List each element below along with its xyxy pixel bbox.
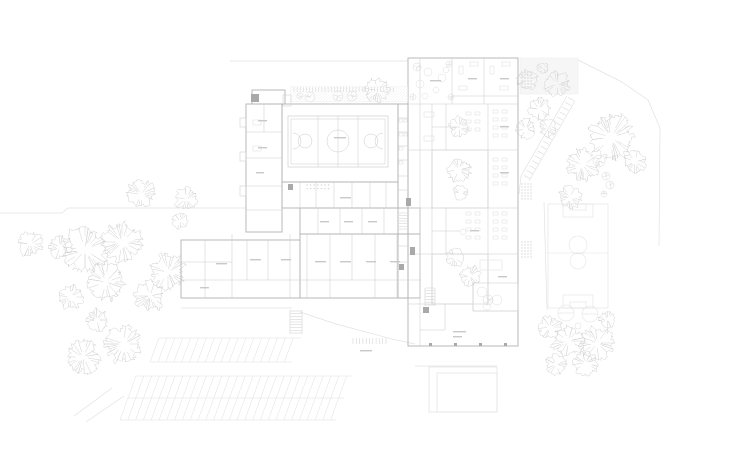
site-boundary-line [86,396,124,422]
core-solid [410,247,415,255]
hatch-line [370,86,386,102]
stair-tread [560,112,566,115]
room-label-mark [281,259,291,260]
planting-dot [530,77,531,78]
planting-dot [530,80,531,81]
stair-tread [535,156,541,159]
planting-dot [527,195,528,196]
planting-dot [324,184,325,185]
table [460,229,466,235]
planting-dot [524,250,525,251]
bush [606,173,607,176]
furniture [502,62,510,66]
planting-dot [314,184,315,185]
planting-dot [527,250,528,251]
parking-stripe [190,338,199,362]
desk [466,120,471,123]
tree [62,226,109,272]
planting-dot [530,195,531,196]
planting-dot [524,241,525,242]
room-label-mark [216,263,227,264]
desk [493,158,498,161]
planting-dot [527,80,528,81]
site-boundary-line [529,101,575,181]
table [492,295,502,305]
hatch-line [355,86,371,102]
bush [413,97,414,99]
planting-dot [524,189,525,190]
planting-dot [530,241,531,242]
planting-dot [524,77,525,78]
planting-dot [527,241,528,242]
core-solid [429,343,432,346]
planting-dot [321,188,322,189]
core-solid [251,94,259,102]
tree [625,150,647,173]
desk [475,212,480,215]
tree [448,115,469,137]
room-label-mark [200,287,209,288]
planting-dot [530,86,531,87]
planting-dot [521,189,522,190]
planting-dot [524,195,525,196]
room-label-mark [250,259,261,260]
parking-stripe [253,338,262,362]
parking-stripe [261,338,270,362]
parking-stripe [269,338,278,362]
room-label-mark [390,261,400,262]
tree [538,315,562,338]
parking-stripe [237,338,246,362]
parking-stripe [245,338,254,362]
desk [502,212,507,215]
wall [282,182,398,208]
parking-stripe [229,338,238,362]
room-label-mark [256,172,264,173]
stair-tread [538,151,544,154]
desk [466,236,471,239]
planting-dot [521,253,522,254]
tree [86,308,108,332]
tree [459,266,481,288]
core-solid [399,264,404,270]
planting-dot [521,83,522,84]
planting-dot [530,247,531,248]
tree [550,325,585,357]
planting-dot [521,198,522,199]
planting-dot [530,189,531,190]
planting-dot [530,83,531,84]
room-label-mark [500,172,509,173]
planting-dot [306,188,307,189]
parking-layer [120,338,352,420]
stair-tread [543,141,549,144]
planting-dot [530,74,531,75]
desk [502,158,507,161]
parking-stripe [197,338,206,362]
tree [527,97,551,120]
furniture [480,260,502,270]
tree [101,221,144,263]
hatch-strip [274,86,422,102]
room-label-mark [470,230,479,231]
site-plan-viewport [0,0,736,459]
site-boundary-line [519,176,521,194]
planting-dot [524,198,525,199]
court-arc [293,133,301,149]
desk [502,118,507,121]
furniture [253,146,261,151]
furniture [399,161,403,164]
bush [414,65,417,67]
planting-dot [530,186,531,187]
planting-dot [527,256,528,257]
vegetation-layer [18,61,646,376]
planting-dot [530,71,531,72]
planting-dot [521,244,522,245]
planting-dot [521,250,522,251]
room-label-mark [258,147,267,148]
planting-dot [524,256,525,257]
room-label-mark [344,221,353,222]
tree [546,354,567,376]
court-circle [364,134,378,148]
desk [502,134,507,137]
room-label-mark [500,126,509,127]
desk [493,212,498,215]
planting-dot [521,247,522,248]
planting-dot [321,184,322,185]
tree [103,324,141,364]
hatch-line [337,86,353,102]
hatch-line [316,86,332,102]
tree [559,185,583,209]
planting-dot [524,183,525,184]
stair-tread [524,175,530,178]
desk [475,128,480,131]
planting-dot [521,71,522,72]
hatch-line [313,86,329,102]
planting-dot [521,183,522,184]
desk [475,220,480,223]
site-boundary-line [300,312,415,344]
tree [453,185,468,200]
site-boundary-line [544,202,547,310]
canopy-outline [429,367,497,412]
planting-dot [524,83,525,84]
desk [466,212,471,215]
planting-dot [521,80,522,81]
wall [408,58,518,346]
table [477,287,487,297]
planting-dot [527,77,528,78]
room-label-mark [360,350,372,351]
partition [240,118,246,127]
furniture [459,66,463,74]
wall [282,104,398,182]
desk [493,174,498,177]
partition [240,186,246,196]
planting-dot [521,256,522,257]
partition [473,283,518,311]
planting-dot [527,244,528,245]
desk [493,126,498,129]
desk [466,112,471,115]
planting-dot [530,183,531,184]
planting-dot [310,184,311,185]
desk [475,112,480,115]
core-solid [504,343,507,346]
room-label-mark [468,78,477,79]
room-label-mark [453,331,466,332]
parking-stripe [182,338,191,362]
desk [493,118,498,121]
hatch-line [403,86,419,102]
desk [475,120,480,123]
hatch-line [349,86,365,102]
court-circle [298,134,312,148]
parking-stripe [276,338,285,362]
tree [18,232,43,256]
hatch-line [397,86,413,102]
furniture [500,86,508,90]
desk [502,236,507,239]
planting-dot [530,192,531,193]
desk [502,182,507,185]
planting-dot [524,86,525,87]
planting-dot [328,184,329,185]
bush [449,97,451,99]
parking-stripe [174,338,183,362]
core-solid [288,184,293,190]
planting-dot [524,247,525,248]
stair-tread [568,97,574,100]
tree [598,312,614,328]
hatch-line [274,86,290,102]
planting-dot [521,186,522,187]
planting-dot [530,198,531,199]
planting-dot [324,188,325,189]
tree [174,186,198,209]
room-label-mark [366,261,376,262]
stair-tread [557,117,563,120]
tree [540,119,556,137]
planting-dot [527,186,528,187]
partition [240,152,246,161]
bush [606,175,609,176]
desk [475,236,480,239]
desk [493,110,498,113]
planting-dot [530,256,531,257]
hatch-line [388,86,404,102]
stair-tread [527,170,533,173]
outdoor-court [548,204,608,308]
courts-layer [288,116,608,329]
tree [68,339,101,375]
planting-dot [527,183,528,184]
furniture [404,133,407,136]
site-boundary-line [521,96,567,176]
core-solid [479,343,482,346]
hatch-line [325,86,341,102]
desk [493,228,498,231]
room-label-mark [340,261,351,262]
stair-tread [540,146,546,149]
room-label-mark [258,120,267,121]
planting-dot [317,184,318,185]
furniture [404,119,407,122]
planting-dot [524,71,525,72]
planting-dot [527,86,528,87]
furniture [459,86,467,90]
bush [449,62,450,64]
site-boundary-line [0,208,246,213]
room-label-mark [320,221,329,222]
stair-tread [565,102,571,105]
hatch-line [346,86,362,102]
furniture [399,119,403,122]
desk [493,134,498,137]
hatch-line [319,86,335,102]
room-label-mark [498,276,507,277]
table [433,87,439,93]
planting-dot [524,186,525,187]
desk [502,174,507,177]
planting-dot [524,80,525,81]
parking-row [120,376,352,420]
furniture [399,133,403,136]
site-boundary-line [74,388,112,416]
desk [493,166,498,169]
core-solid [423,307,429,313]
tree [126,179,155,206]
tree [133,279,163,311]
court-arc [375,133,383,149]
table [443,67,449,73]
floor-plan-canvas [0,0,736,459]
core-solid [454,343,457,346]
bush [488,300,491,302]
furniture [399,147,403,150]
planting-dot [530,253,531,254]
planting-dot [521,77,522,78]
planting-dot [527,83,528,84]
planting-dot [524,253,525,254]
parking-row [150,338,301,362]
desk [502,220,507,223]
court-circle [575,323,581,329]
parking-stripe [150,338,159,362]
planting-dot [314,188,315,189]
court-circle [570,253,586,269]
planting-dot [527,192,528,193]
tree [588,113,635,161]
planting-dot [306,184,307,185]
desk [493,236,498,239]
planting-dot [328,188,329,189]
planting-dot [527,198,528,199]
parking-stripe [158,338,167,362]
furniture [424,136,434,141]
planting-dot [524,244,525,245]
desk [493,220,498,223]
planting-dot [527,71,528,72]
planting-dot [310,188,311,189]
canopy-outline [437,373,497,412]
wall [181,240,300,298]
planting-dot [521,241,522,242]
planting-dot [527,189,528,190]
desk [493,182,498,185]
planting-dot [524,74,525,75]
room-label-mark [315,261,326,262]
room-label-mark [430,80,441,81]
bush [605,173,606,176]
core-solid [406,198,411,206]
tree [172,213,189,229]
planting-dot [521,74,522,75]
hatch-line [352,86,368,102]
room-label-mark [334,137,346,138]
planting-dot [527,74,528,75]
planting-dot [530,250,531,251]
tree [578,325,614,361]
bush [606,176,607,179]
room-label-mark [368,221,377,222]
furniture [424,112,434,117]
paving-area [520,58,578,94]
planting-dot [527,253,528,254]
furniture [470,62,478,66]
site-boundary-line [578,60,660,246]
goal-box [570,302,586,308]
stair-tread [529,166,535,169]
room-label-mark [340,197,351,198]
bush [610,185,611,188]
furniture [490,66,494,74]
parking-stripe [166,338,175,362]
stair-tread [532,161,538,164]
desk [502,228,507,231]
parking-stripe [213,338,222,362]
room-label-mark [500,78,509,79]
stair-tread [562,107,568,110]
planting-dot [521,192,522,193]
hatch-line [322,86,338,102]
room-label-mark [453,336,462,337]
tree [446,248,464,267]
hatch-line [295,86,311,102]
planting-dot [530,244,531,245]
desk [502,166,507,169]
partition [432,150,488,208]
tree [59,284,84,309]
planting-dot [527,247,528,248]
parking-stripe [205,338,214,362]
tree [364,78,391,103]
planting-dot [521,195,522,196]
parking-stripe [221,338,230,362]
table [424,68,432,76]
desk [466,220,471,223]
planting-dot [317,188,318,189]
table [422,93,428,99]
tree [447,159,472,183]
bush [603,176,606,177]
table [483,302,491,310]
desk [502,110,507,113]
court-circle [569,236,587,254]
